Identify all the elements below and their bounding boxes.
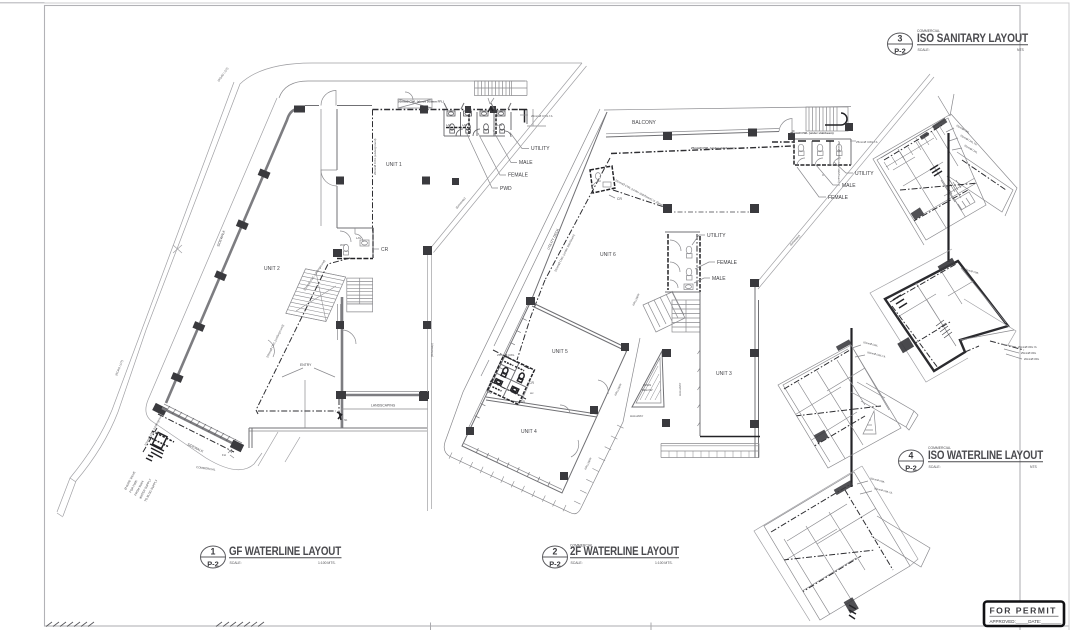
svg-text:BALCONY: BALCONY [632, 120, 657, 126]
svg-text:UTILITY: UTILITY [531, 146, 550, 152]
svg-text:ISO WATERLINE LAYOUT: ISO WATERLINE LAYOUT [928, 448, 1043, 462]
svg-text:25mmØ CWL: 25mmØ CWL [497, 353, 515, 357]
svg-text:NTS: NTS [1030, 465, 1038, 469]
svg-text:CR: CR [520, 400, 525, 404]
svg-text:LANDSCAPING: LANDSCAPING [371, 404, 396, 408]
svg-text:UNIT 3: UNIT 3 [716, 371, 732, 377]
svg-text:FEMALE: FEMALE [828, 195, 849, 201]
svg-text:25mmØ CWL (under slab/beam): 25mmØ CWL (under slab/beam) [691, 146, 735, 150]
svg-text:NTS: NTS [1017, 48, 1025, 52]
svg-text:20mmØ CWL (above 200mm FFL): 20mmØ CWL (above 200mm FFL) [398, 100, 444, 104]
svg-text:(Driveway): (Driveway) [430, 343, 434, 357]
svg-text:20mmØ CWL: 20mmØ CWL [1024, 358, 1040, 361]
svg-text:BELOW: BELOW [642, 388, 653, 392]
svg-text:UNIT 1: UNIT 1 [386, 162, 402, 168]
svg-text:P-2: P-2 [905, 464, 917, 473]
svg-text:WC: WC [340, 243, 345, 247]
svg-text:SCALE:: SCALE: [571, 561, 583, 565]
svg-text:UNIT 4: UNIT 4 [521, 429, 537, 435]
svg-text:OPEN: OPEN [643, 383, 651, 387]
svg-text:CR: CR [617, 197, 622, 201]
svg-text:3: 3 [898, 34, 903, 44]
svg-text:25mmØ CWL: 25mmØ CWL [1021, 352, 1037, 355]
svg-text:25mmØ CWL (under slab/beam): 25mmØ CWL (under slab/beam) [790, 131, 834, 135]
svg-text:25mmØ CWL f.b.: 25mmØ CWL f.b. [1018, 346, 1038, 349]
svg-text:PWD: PWD [500, 186, 512, 192]
svg-text:LAV: LAV [446, 123, 451, 127]
svg-text:P-2: P-2 [894, 47, 906, 56]
svg-text:CR: CR [529, 381, 534, 385]
svg-text:ISO SANITARY LAYOUT: ISO SANITARY LAYOUT [917, 31, 1029, 45]
svg-text:2F WATERLINE LAYOUT: 2F WATERLINE LAYOUT [570, 544, 679, 558]
svg-text:UNIT 5: UNIT 5 [552, 349, 568, 355]
svg-text:C: C [822, 173, 824, 177]
svg-text:SCALE:: SCALE: [918, 48, 930, 52]
svg-text:UNIT 2: UNIT 2 [264, 266, 280, 272]
svg-text:FEMALE: FEMALE [508, 173, 529, 179]
svg-text:hb: hb [344, 418, 348, 422]
svg-text:P-2: P-2 [207, 560, 219, 569]
svg-text:1: 1 [211, 547, 216, 557]
svg-text:FEMALE: FEMALE [717, 260, 738, 266]
svg-text:GF WATERLINE LAYOUT: GF WATERLINE LAYOUT [229, 544, 341, 558]
svg-text:LAV: LAV [497, 123, 502, 127]
svg-text:MALE: MALE [519, 160, 533, 166]
svg-text:MALE: MALE [712, 276, 726, 282]
svg-text:CR: CR [381, 247, 389, 253]
svg-text:1:100 MTS.: 1:100 MTS. [655, 561, 673, 565]
svg-text:FOR PERMIT: FOR PERMIT [990, 606, 1059, 616]
svg-text:MALE: MALE [842, 183, 856, 189]
svg-text:LAV: LAV [462, 123, 467, 127]
svg-text:20mmØ CWL f.b.: 20mmØ CWL f.b. [531, 114, 553, 118]
svg-text:SCALE:: SCALE: [230, 561, 242, 565]
svg-text:wc: wc [530, 391, 534, 395]
svg-text:ENTRY: ENTRY [300, 363, 312, 367]
svg-text:HALLWAY: HALLWAY [678, 383, 682, 396]
svg-text:UTILITY: UTILITY [707, 233, 726, 239]
svg-text:20mmØ CWL (underground): 20mmØ CWL (underground) [373, 138, 377, 175]
svg-text:LAV: LAV [356, 236, 361, 240]
svg-text:UTILITY: UTILITY [855, 171, 874, 177]
svg-text:P-2: P-2 [549, 560, 561, 569]
svg-text:25mmØ CWL f.b.: 25mmØ CWL f.b. [856, 140, 878, 144]
svg-text:APPROVED:_____DATE:________: APPROVED:_____DATE:________ [990, 619, 1062, 624]
svg-text:FH: FH [222, 453, 226, 457]
svg-text:2: 2 [553, 547, 558, 557]
svg-text:UNIT 6: UNIT 6 [600, 252, 616, 258]
svg-text:1:100 MTS.: 1:100 MTS. [318, 561, 336, 565]
svg-text:25mmØ CWL (under slab/beam): 25mmØ CWL (under slab/beam) [837, 141, 841, 183]
svg-text:SCALE:: SCALE: [929, 465, 941, 469]
svg-text:HALLWAY: HALLWAY [630, 414, 643, 418]
svg-text:4: 4 [909, 451, 914, 461]
